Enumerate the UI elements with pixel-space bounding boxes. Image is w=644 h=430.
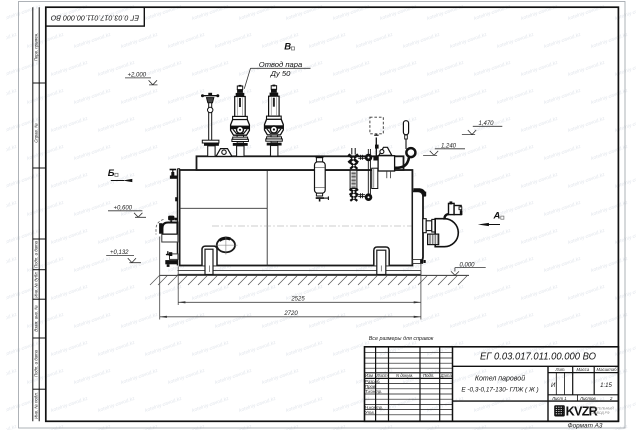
svg-text:Справ. №: Справ. № bbox=[34, 123, 39, 143]
svg-text:+0,132: +0,132 bbox=[110, 250, 129, 256]
svg-text:Формат А3: Формат А3 bbox=[568, 423, 603, 430]
svg-text:Утв.: Утв. bbox=[365, 410, 375, 415]
svg-text:Лист: Лист bbox=[376, 373, 388, 378]
svg-text:Отвод пара: Отвод пара bbox=[259, 60, 302, 69]
svg-text:+2,000: +2,000 bbox=[128, 73, 147, 79]
svg-text:Дата: Дата bbox=[440, 373, 453, 378]
svg-text:Подп. и дата: Подп. и дата bbox=[34, 240, 39, 268]
svg-text:+0,600: +0,600 bbox=[114, 206, 133, 212]
svg-text:Все размеры для справок: Все размеры для справок bbox=[369, 336, 434, 342]
svg-text:Лит.: Лит. bbox=[555, 367, 566, 372]
svg-text:ЗАВОД РФ: ЗАВОД РФ bbox=[592, 411, 610, 415]
svg-text:Лист 1: Лист 1 bbox=[551, 396, 567, 401]
svg-text:Масса: Масса bbox=[577, 367, 590, 372]
svg-text:1,240: 1,240 bbox=[441, 144, 457, 150]
svg-text:Подп. и дата: Подп. и дата bbox=[34, 349, 39, 377]
svg-text:КОТЕЛЬНЫЙ: КОТЕЛЬНЫЙ bbox=[592, 406, 614, 410]
svg-text:Листов: Листов bbox=[579, 396, 596, 401]
svg-text:Т.контр.: Т.контр. bbox=[365, 389, 382, 394]
svg-text:N докум.: N докум. bbox=[396, 373, 413, 378]
svg-text:2525: 2525 bbox=[290, 296, 305, 302]
svg-text:Инв. № подл.: Инв. № подл. bbox=[34, 392, 39, 419]
svg-text:Инв. № дубл.: Инв. № дубл. bbox=[34, 271, 39, 297]
svg-text:Котел паровой: Котел паровой bbox=[475, 375, 525, 383]
svg-text:ЕГ 0.03.017.011.00.000 ВО: ЕГ 0.03.017.011.00.000 ВО bbox=[50, 13, 139, 22]
svg-text:ЕГ 0.03.017.011.00.000 ВО: ЕГ 0.03.017.011.00.000 ВО bbox=[480, 352, 596, 363]
svg-text:И: И bbox=[551, 383, 556, 389]
svg-text:Подп.: Подп. bbox=[423, 373, 434, 378]
svg-text:Перв. примен.: Перв. примен. bbox=[34, 33, 39, 62]
svg-text:А: А bbox=[493, 211, 501, 222]
svg-text:0,000: 0,000 bbox=[460, 262, 476, 268]
svg-text:1:15: 1:15 bbox=[600, 383, 612, 389]
svg-text:В: В bbox=[284, 42, 291, 53]
svg-text:Е -0,3-0,17-130- ГЛЖ ( Ж ): Е -0,3-0,17-130- ГЛЖ ( Ж ) bbox=[461, 387, 538, 394]
svg-text:Масштаб: Масштаб bbox=[597, 367, 618, 372]
svg-text:1,470: 1,470 bbox=[479, 121, 495, 127]
svg-text:Ду 50: Ду 50 bbox=[270, 69, 292, 78]
svg-text:Взам. инв. №: Взам. инв. № bbox=[34, 305, 39, 332]
svg-text:2720: 2720 bbox=[283, 311, 298, 317]
svg-text:Изм: Изм bbox=[365, 373, 373, 378]
svg-text:Б: Б bbox=[108, 168, 115, 179]
